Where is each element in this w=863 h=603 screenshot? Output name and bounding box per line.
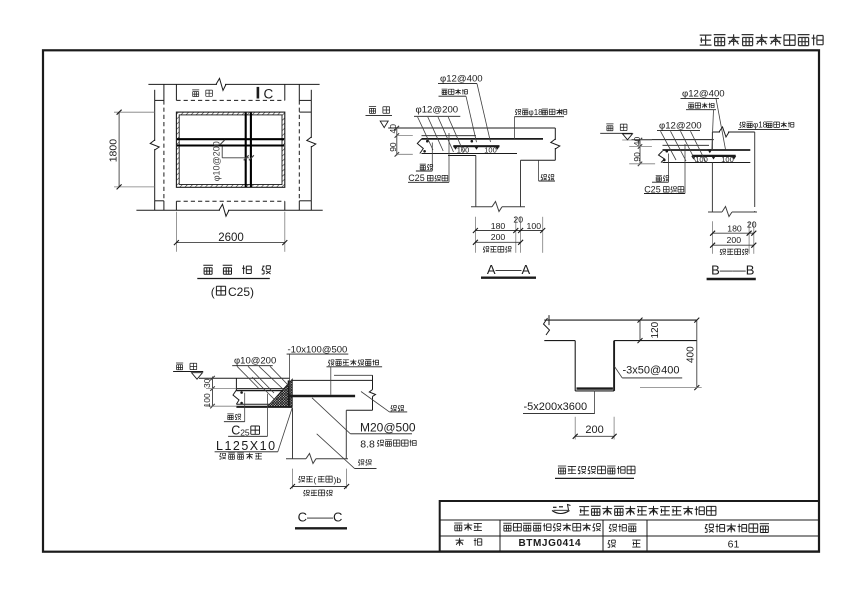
svg-text:2600: 2600 (218, 232, 244, 244)
svg-text:20: 20 (513, 215, 523, 225)
svg-text:120: 120 (650, 321, 661, 338)
svg-text:90: 90 (632, 152, 642, 162)
svg-text:180: 180 (727, 224, 742, 234)
svg-text:180: 180 (491, 221, 506, 231)
svg-text:1800: 1800 (108, 139, 120, 163)
svg-text:C25: C25 (408, 173, 425, 183)
svg-text:A——A: A——A (487, 262, 531, 277)
svg-text:C——C: C——C (298, 510, 343, 525)
svg-text:φ18: φ18 (529, 108, 544, 117)
svg-text:φ10@200: φ10@200 (234, 356, 276, 367)
svg-text:C25): C25) (228, 285, 254, 299)
svg-text:φ12@400: φ12@400 (440, 73, 483, 84)
svg-text:C25: C25 (644, 184, 661, 194)
svg-text:40: 40 (388, 124, 398, 134)
svg-text:200: 200 (585, 424, 603, 436)
svg-text:C: C (231, 424, 240, 438)
svg-text:40: 40 (632, 136, 642, 146)
svg-text:-3x50@400: -3x50@400 (623, 365, 680, 377)
svg-text:90: 90 (388, 142, 398, 152)
svg-text:100: 100 (527, 221, 542, 231)
svg-text:φ12@200: φ12@200 (659, 120, 702, 131)
svg-text:30: 30 (202, 378, 212, 388)
svg-text:400: 400 (685, 346, 696, 363)
svg-text:BTMJG0414: BTMJG0414 (518, 538, 581, 549)
svg-text:φ10@200: φ10@200 (212, 141, 222, 181)
svg-text:C: C (264, 86, 274, 101)
svg-text:(: ( (314, 475, 317, 485)
svg-text:100: 100 (695, 155, 708, 164)
svg-text:100: 100 (202, 393, 212, 407)
svg-text:B——B: B——B (711, 263, 754, 278)
svg-text:61: 61 (728, 538, 740, 550)
svg-text:100: 100 (484, 146, 497, 155)
svg-text:)b: )b (334, 475, 342, 485)
svg-text:L125X10: L125X10 (216, 439, 277, 453)
svg-text:φ12@200: φ12@200 (416, 105, 459, 116)
svg-text:200: 200 (727, 235, 742, 245)
svg-text:200: 200 (491, 232, 506, 242)
svg-text:φ18: φ18 (753, 121, 768, 130)
svg-text:-5x200x3600: -5x200x3600 (524, 401, 588, 413)
svg-text:8.8: 8.8 (360, 439, 375, 451)
svg-text:M20@500: M20@500 (360, 421, 416, 435)
svg-text:φ12@400: φ12@400 (682, 89, 725, 100)
svg-text:20: 20 (747, 219, 757, 229)
svg-text:100: 100 (721, 155, 734, 164)
svg-text:(: ( (211, 285, 215, 299)
